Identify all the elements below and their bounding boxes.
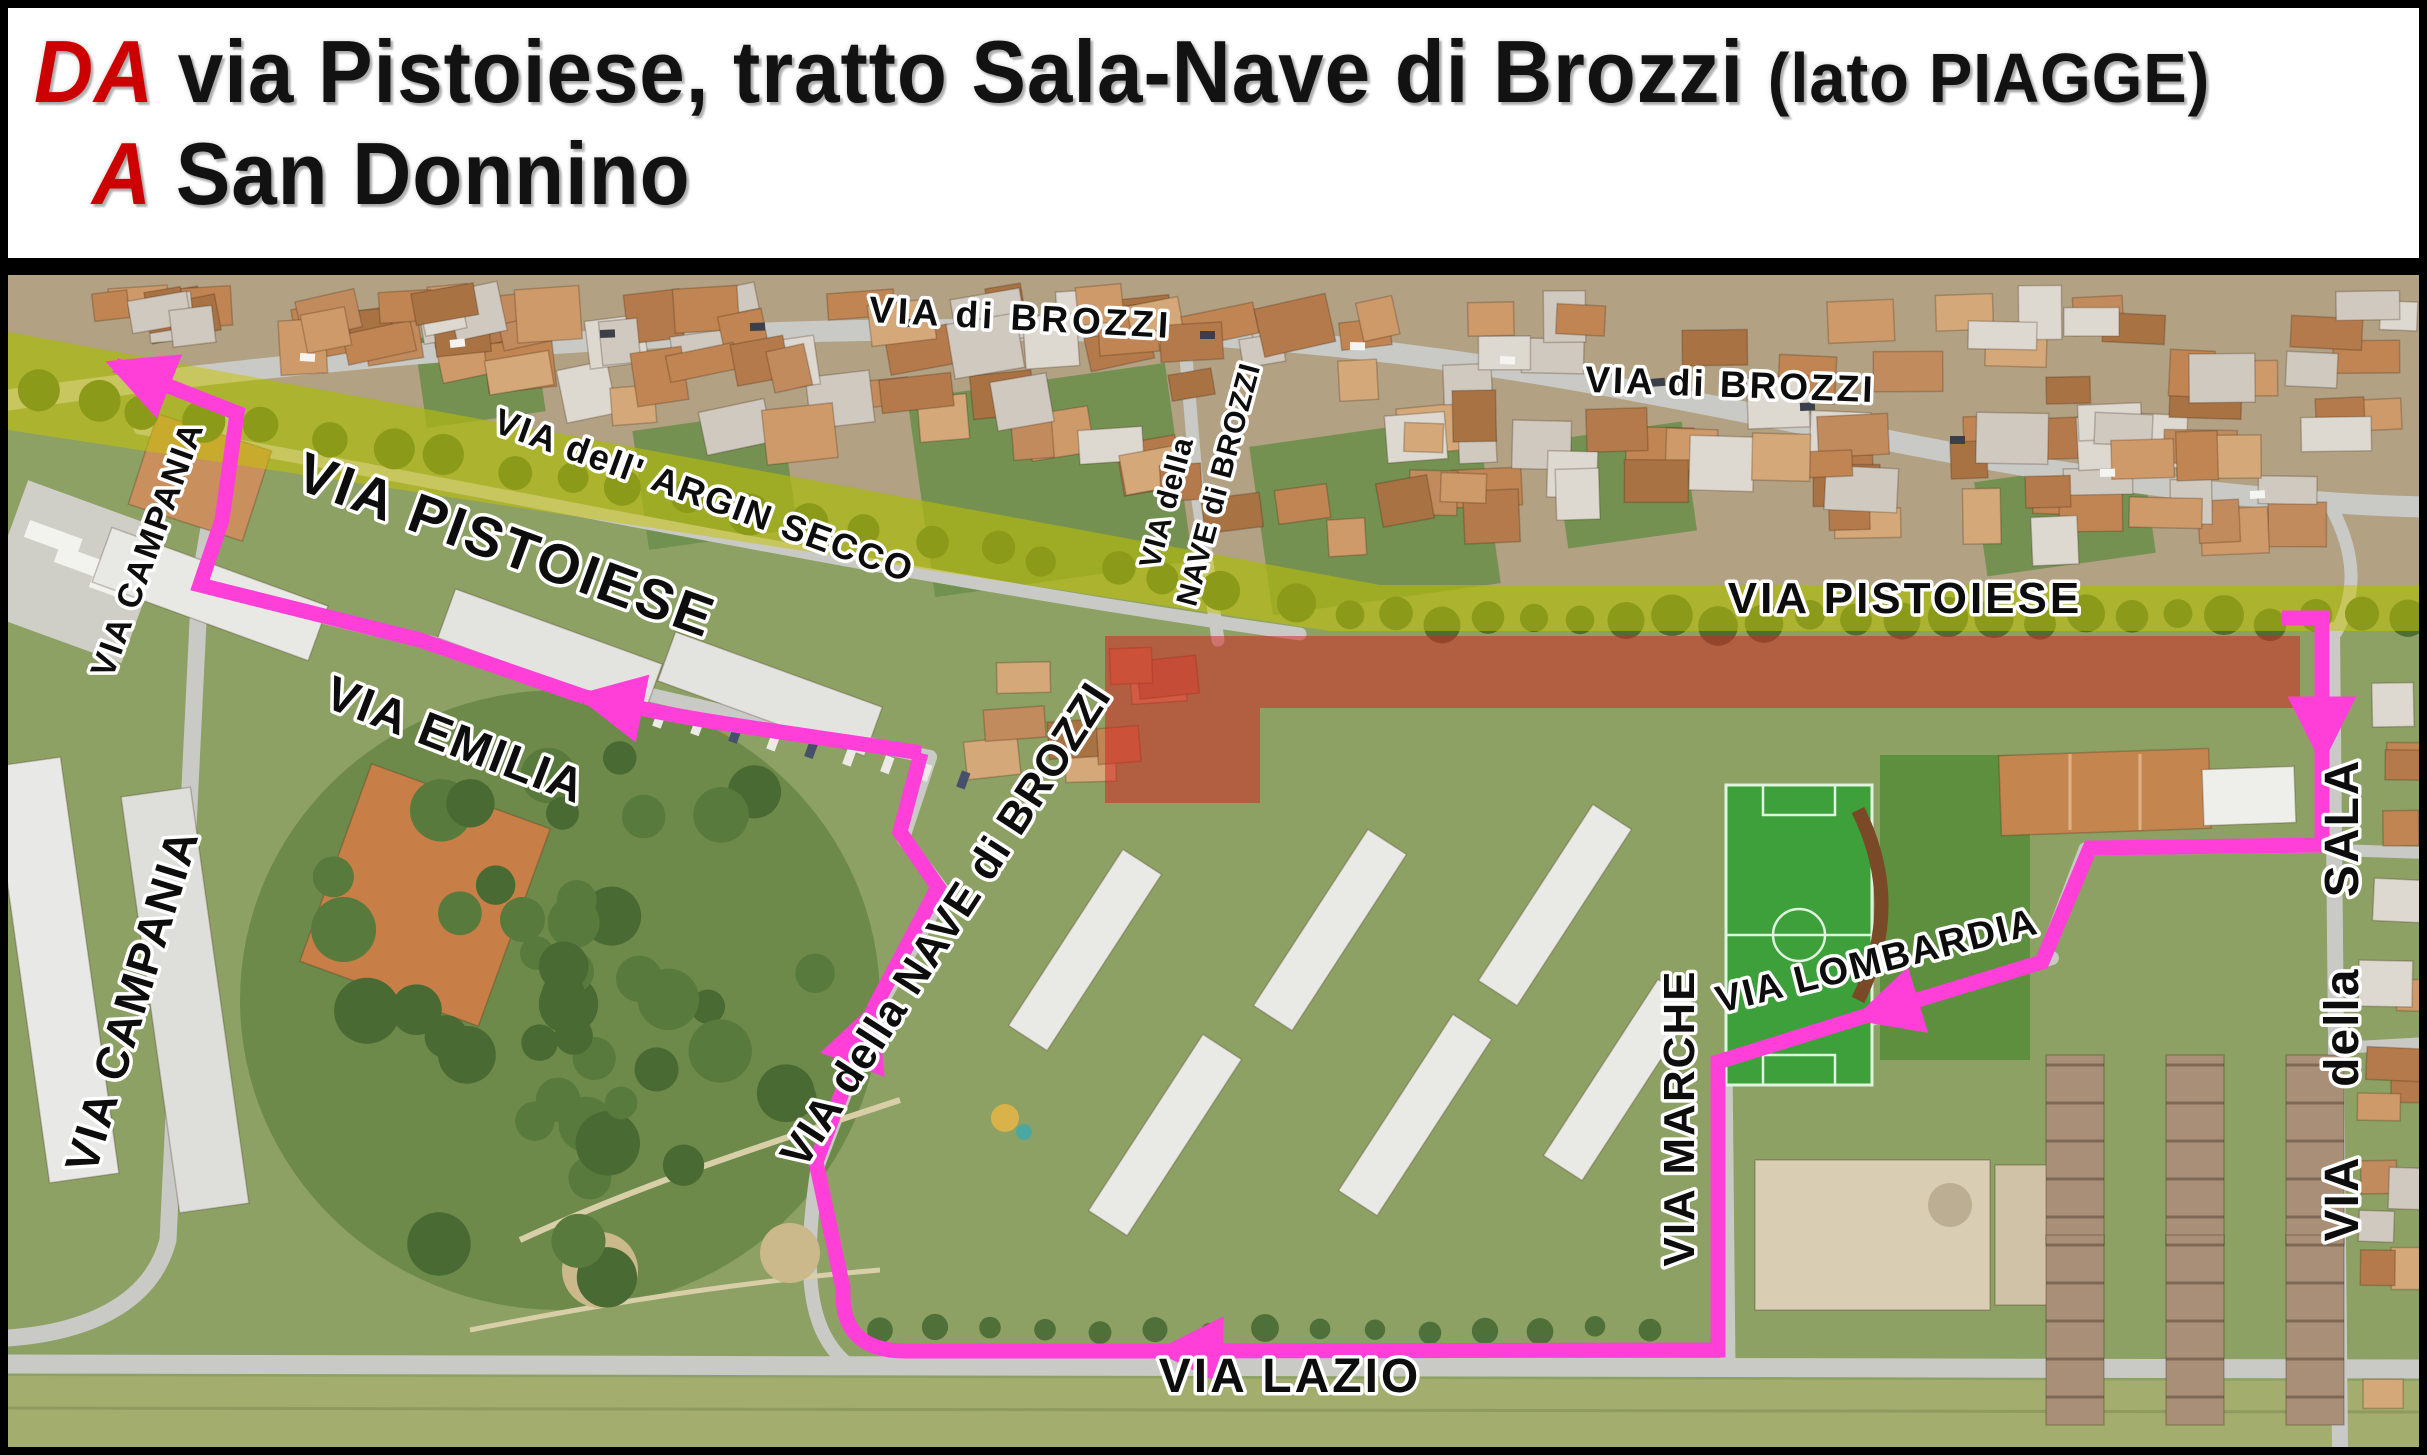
street-label-via-pistoiese-horizontal: VIA PISTOIESE <box>1728 574 2082 623</box>
street-label-via-marche: VIA MARCHE <box>1655 969 1704 1266</box>
street-label-via-della-sala: VIA della SALA <box>2316 759 2369 1242</box>
from-suffix: (lato PIAGGE) <box>1768 39 2210 117</box>
title-line-to: A San Donnino <box>92 124 691 224</box>
detour-flyer: DA via Pistoiese, tratto Sala-Nave di Br… <box>0 0 2427 1455</box>
title-banner: DA via Pistoiese, tratto Sala-Nave di Br… <box>8 8 2419 258</box>
to-text: San Donnino <box>176 124 691 223</box>
from-label: DA <box>34 22 154 121</box>
street-label-via-lazio: VIA LAZIO <box>1159 1350 1422 1403</box>
map-canvas: VIA di BROZZIVIA dell' ARGIN SECCOVIA PI… <box>8 275 2419 1447</box>
from-text: via Pistoiese, tratto Sala-Nave di Brozz… <box>178 22 1744 121</box>
to-label: A <box>92 124 152 223</box>
title-line-from: DA via Pistoiese, tratto Sala-Nave di Br… <box>34 22 2210 128</box>
